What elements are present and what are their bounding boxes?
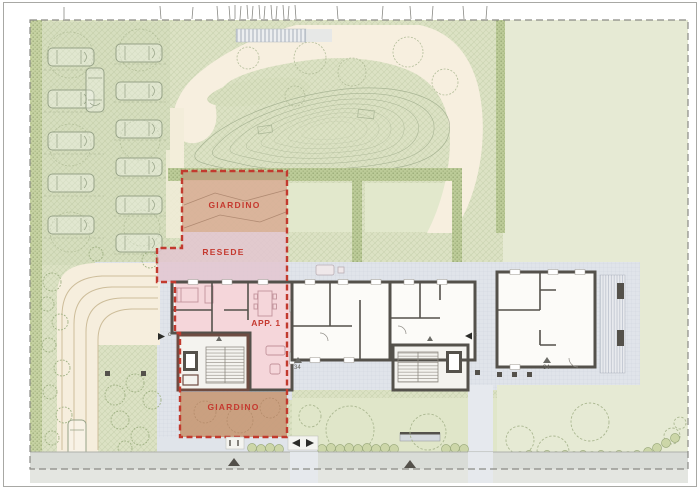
site-plan-page: GIARDINO RESEDE APP. 1 GIARDINO 34 34 c … (0, 0, 700, 489)
drawing-frame (3, 2, 697, 487)
